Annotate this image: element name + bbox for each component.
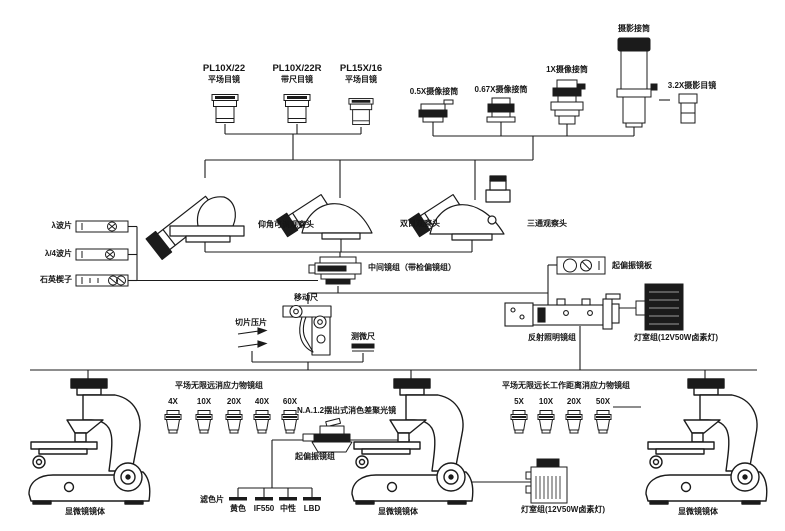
microscope-body-middle-icon [352, 379, 473, 504]
polarizer-plate-label: 起偏振镜板 [612, 261, 652, 271]
photo-tube-icon [617, 38, 657, 127]
eyepiece-pl15x16-icon [349, 99, 373, 125]
eyepiece-label-2: PL10X/22R 带尺目镜 [272, 63, 321, 85]
objective-group-long-wd-title: 平场无限远长工作距离消应力物镜组 [502, 381, 630, 391]
mag-60x-label: 60X [283, 397, 297, 407]
tilting-head-label: 仰角可调观察头 [258, 220, 314, 230]
condenser-label: N.A.1.2摆出式消色差聚光镜 [297, 406, 396, 416]
slide-clips-icon [238, 328, 266, 347]
mag-5x-label: 5X [514, 397, 524, 407]
adapter-0-67x-label: 0.67X摄像接筒 [475, 85, 528, 95]
mag-20x-lwd-label: 20X [567, 397, 581, 407]
eyepiece-1-model: PL10X/22 [203, 63, 245, 75]
microscope-body-right-label: 显微镜镜体 [678, 507, 718, 517]
quartz-wedge-icon [76, 275, 128, 286]
condenser-polarizer-label: 起偏振镜组 [295, 452, 335, 462]
quarter-lambda-plate-label: λ/4波片 [45, 249, 72, 259]
polarizer-plate-icon [557, 257, 605, 274]
trinocular-head-label: 三通观察头 [527, 219, 567, 229]
micrometer-icon [352, 344, 374, 351]
mag-10x-lwd-label: 10X [539, 397, 553, 407]
objective-group-transmitted-title: 平场无限远消应力物镜组 [175, 381, 263, 391]
eyepiece-pl10x22-icon [212, 95, 238, 123]
stage-ruler-label: 移动尺 [294, 293, 318, 303]
micrometer-label: 测微尺 [351, 332, 375, 342]
quarter-lambda-plate-icon [76, 249, 128, 260]
adapter-0-5x-label: 0.5X摄像接筒 [410, 87, 458, 97]
reflected-illuminator-icon [505, 294, 620, 329]
adapter-0-5x-icon [419, 100, 453, 122]
mag-4x-label: 4X [168, 397, 178, 407]
eyepiece-3-type: 平场目镜 [340, 75, 382, 85]
mag-40x-label: 40X [255, 397, 269, 407]
photo-tube-label: 摄影接筒 [618, 24, 650, 34]
eyepiece-1-type: 平场目镜 [203, 75, 245, 85]
filter-lbd-label: LBD [304, 504, 320, 514]
trinocular-head-icon [409, 176, 510, 240]
lamp-house-right-label: 灯室组(12V50W卤素灯) [634, 333, 718, 343]
lambda-plate-label: λ波片 [52, 221, 72, 231]
adapter-1x-icon [551, 80, 585, 124]
microscope-body-right-icon [646, 379, 767, 504]
filter-if550-label: IF550 [254, 504, 274, 514]
eyepiece-pl10x22r-icon [284, 95, 310, 123]
filters-label: 滤色片 [200, 495, 224, 505]
objective-group-long-wd-icons [511, 411, 611, 434]
adapter-1x-label: 1X摄像接筒 [546, 65, 588, 75]
mag-20x-label: 20X [227, 397, 241, 407]
microscope-body-left-icon [29, 379, 150, 504]
reflected-illuminator-label: 反射照明镜组 [528, 333, 576, 343]
eyepiece-label-3: PL15X/16 平场目镜 [340, 63, 382, 85]
microscope-body-left-label: 显微镜镜体 [65, 507, 105, 517]
microscope-system-diagram: PL10X/22 平场目镜 PL10X/22R 带尺目镜 PL15X/16 平场… [0, 0, 785, 531]
quartz-wedge-label: 石英楔子 [40, 275, 72, 285]
lamp-house-bottom-label: 灯室组(12V50W卤素灯) [521, 505, 605, 515]
filter-bars [229, 497, 321, 501]
eyepiece-2-type: 带尺目镜 [272, 75, 321, 85]
eyepiece-2-model: PL10X/22R [272, 63, 321, 75]
photo-eyepiece-label: 3.2X摄影目镜 [668, 81, 716, 91]
mag-50x-label: 50X [596, 397, 610, 407]
eyepiece-label-1: PL10X/22 平场目镜 [203, 63, 245, 85]
intermediate-tube-label: 中间镜组（带检偏镜组） [368, 263, 456, 273]
slide-clips-label: 切片压片 [235, 318, 267, 328]
objective-group-transmitted-icons [165, 411, 298, 434]
mag-10x-label: 10X [197, 397, 211, 407]
binocular-head-label: 双目观察头 [400, 219, 440, 229]
filter-neutral-label: 中性 [280, 504, 296, 514]
microscope-body-middle-label: 显微镜镜体 [378, 507, 418, 517]
condenser-icon [303, 418, 352, 452]
lamp-house-bottom-icon [526, 459, 567, 503]
adapter-0-67x-icon [487, 98, 515, 122]
lambda-plate-icon [76, 221, 128, 232]
lamp-house-right-icon [636, 284, 683, 330]
filter-yellow-label: 黄色 [230, 504, 246, 514]
eyepiece-3-model: PL15X/16 [340, 63, 382, 75]
binocular-head-icon [277, 192, 372, 239]
tilting-head-icon [146, 194, 244, 259]
stage-ruler-icon [283, 306, 331, 356]
photo-eyepiece-3-2x-icon [679, 94, 697, 123]
